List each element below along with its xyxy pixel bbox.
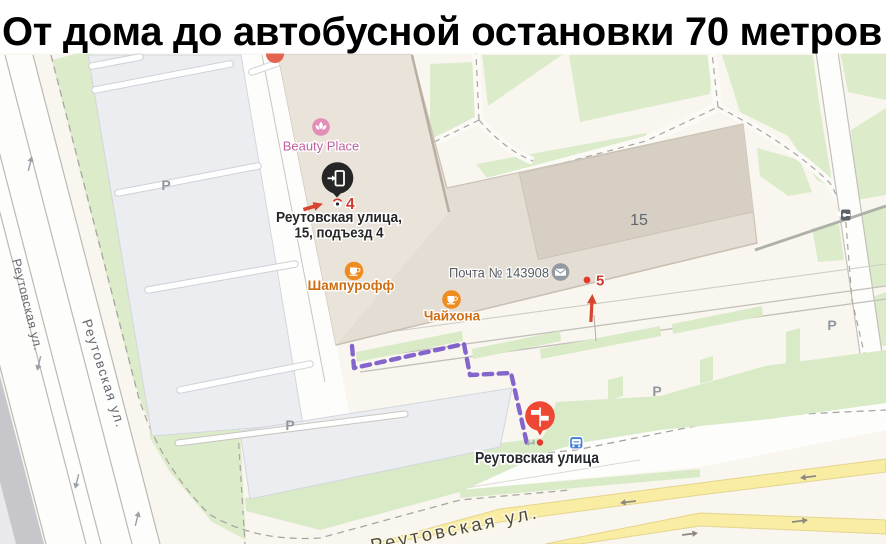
svg-text:Реутовская улица,: Реутовская улица, xyxy=(276,210,402,226)
svg-text:Р: Р xyxy=(827,317,836,333)
svg-text:Чайхона: Чайхона xyxy=(424,309,481,324)
svg-text:15, подъезд 4: 15, подъезд 4 xyxy=(295,226,385,242)
svg-text:Шампурофф: Шампурофф xyxy=(308,278,395,293)
svg-text:Р: Р xyxy=(285,417,294,433)
svg-text:Р: Р xyxy=(652,383,661,399)
svg-text:Р: Р xyxy=(161,177,170,193)
svg-text:Реутовская улица: Реутовская улица xyxy=(475,450,599,467)
svg-text:15: 15 xyxy=(630,212,648,229)
svg-text:Почта № 143908: Почта № 143908 xyxy=(449,265,549,281)
svg-text:Beauty Place: Beauty Place xyxy=(283,139,360,154)
svg-text:5: 5 xyxy=(596,273,604,290)
